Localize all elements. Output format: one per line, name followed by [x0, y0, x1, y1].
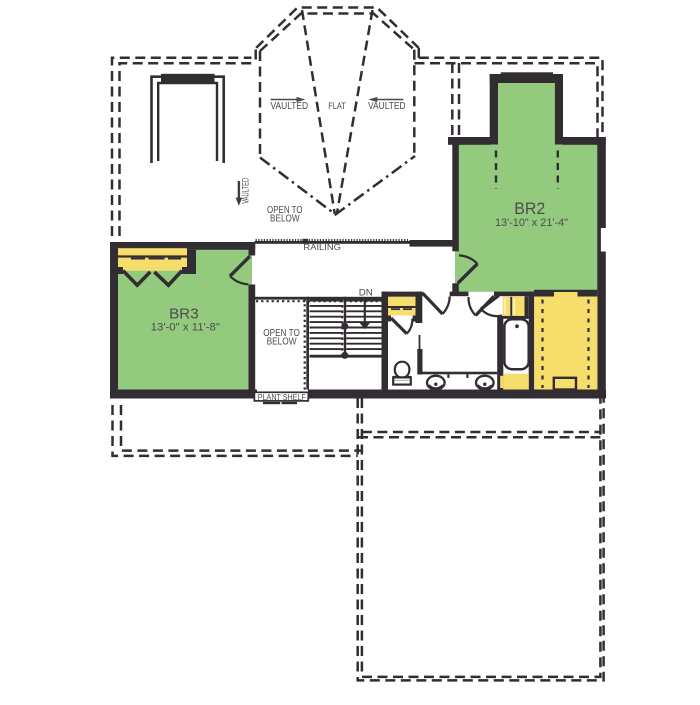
svg-text:BR3: BR3 [169, 306, 199, 323]
svg-text:BR2: BR2 [514, 199, 545, 218]
svg-text:VAULTED: VAULTED [368, 101, 406, 112]
svg-text:FLAT: FLAT [328, 101, 346, 112]
svg-text:13'-0" x 11'-8": 13'-0" x 11'-8" [151, 322, 220, 334]
svg-text:RAILING: RAILING [303, 242, 341, 252]
svg-text:VAULTED: VAULTED [240, 177, 250, 203]
svg-text:VAULTED: VAULTED [271, 101, 309, 112]
svg-text:DN: DN [359, 287, 373, 297]
svg-text:BELOW: BELOW [267, 337, 297, 348]
svg-text:13'-10" x 21'-4": 13'-10" x 21'-4" [495, 217, 568, 229]
svg-text:PLANT SHELF: PLANT SHELF [258, 393, 306, 402]
svg-text:BELOW: BELOW [270, 214, 300, 225]
